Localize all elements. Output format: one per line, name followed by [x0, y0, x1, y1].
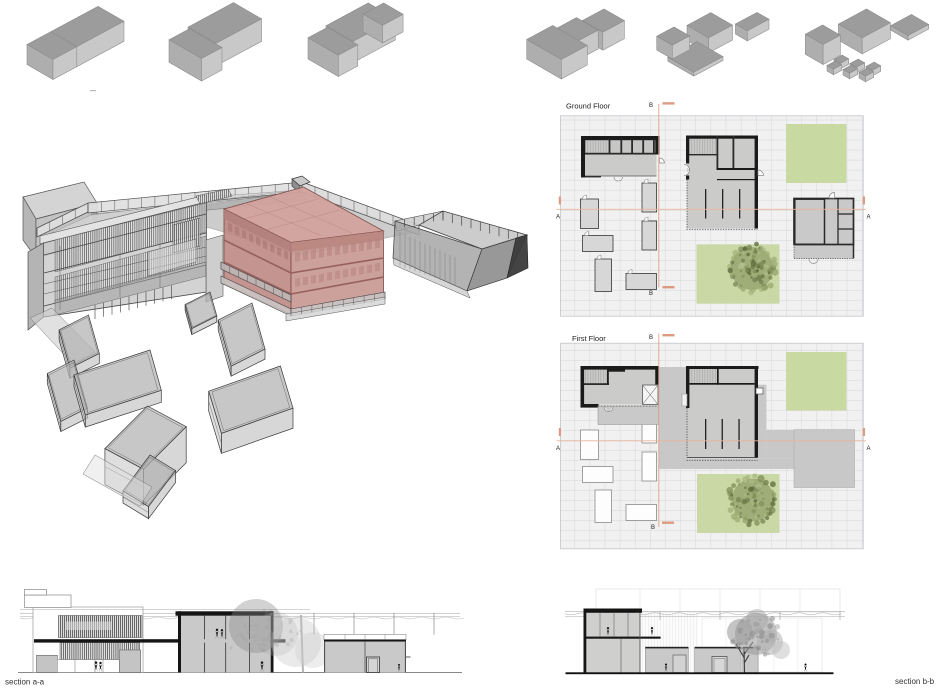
svg-text:A: A: [556, 215, 560, 221]
svg-text:B: B: [649, 103, 653, 109]
svg-text:B: B: [651, 525, 655, 531]
svg-text:section b-b: section b-b: [895, 677, 935, 686]
svg-text:B: B: [649, 291, 653, 297]
svg-text:A: A: [867, 215, 871, 221]
svg-text:Ground Floor: Ground Floor: [566, 102, 611, 111]
svg-text:First Floor: First Floor: [572, 334, 606, 343]
svg-text:B: B: [649, 335, 653, 341]
svg-text:A: A: [556, 446, 560, 452]
svg-text:A: A: [867, 446, 871, 452]
svg-text:section a-a: section a-a: [5, 678, 45, 687]
